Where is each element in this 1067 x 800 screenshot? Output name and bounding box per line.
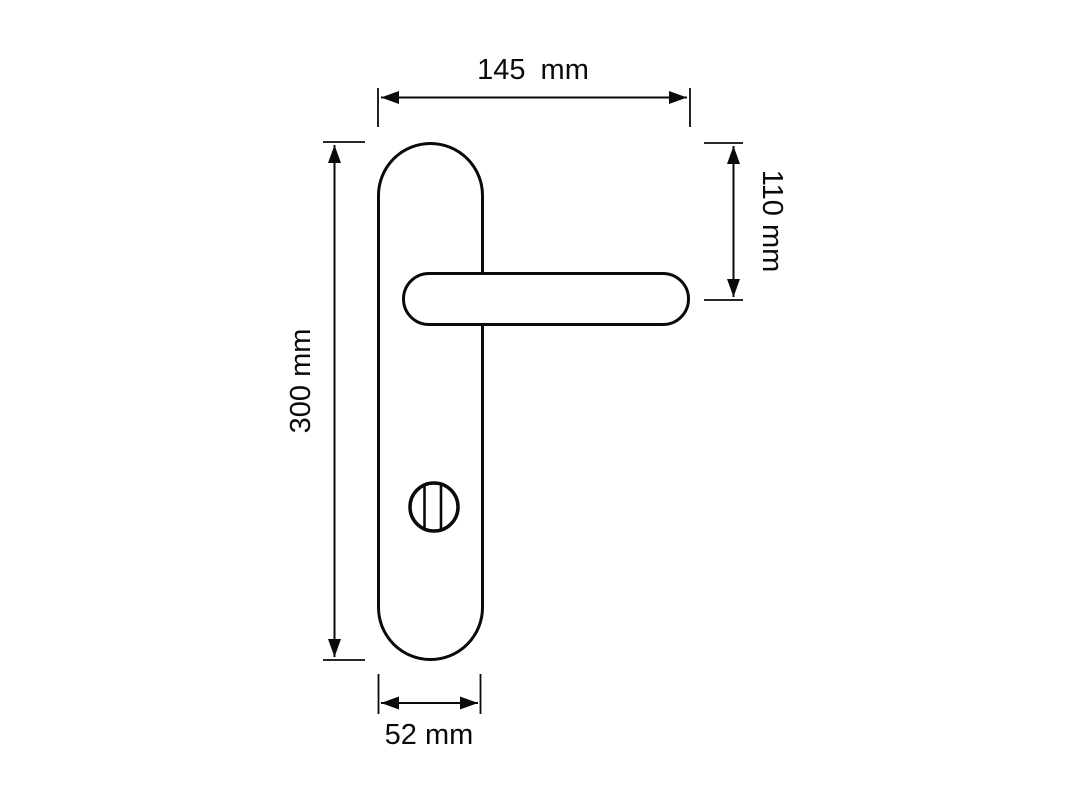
dimension-label-plate-height: 300 mm <box>285 329 317 434</box>
dimension-plate-height: 300 mm <box>285 142 365 660</box>
dimension-label-handle-offset: 110 mm <box>756 170 788 273</box>
dimension-label-overall-width: 145 mm <box>477 54 589 86</box>
door-handle-technical-drawing: 145 mm 110 mm 300 mm 52 mm <box>0 0 1067 800</box>
handle-assembly <box>379 144 689 660</box>
lever-handle-outline <box>404 274 689 325</box>
dimension-handle-offset: 110 mm <box>704 143 788 300</box>
drawing-canvas: 145 mm 110 mm 300 mm 52 mm <box>0 0 1067 800</box>
dimension-overall-width: 145 mm <box>378 54 690 127</box>
backplate-outline <box>379 144 483 660</box>
dimension-label-plate-width: 52 mm <box>385 719 474 751</box>
dimension-plate-width: 52 mm <box>379 674 481 751</box>
thumbturn-icon <box>410 483 458 531</box>
thumbturn-circle <box>410 483 458 531</box>
